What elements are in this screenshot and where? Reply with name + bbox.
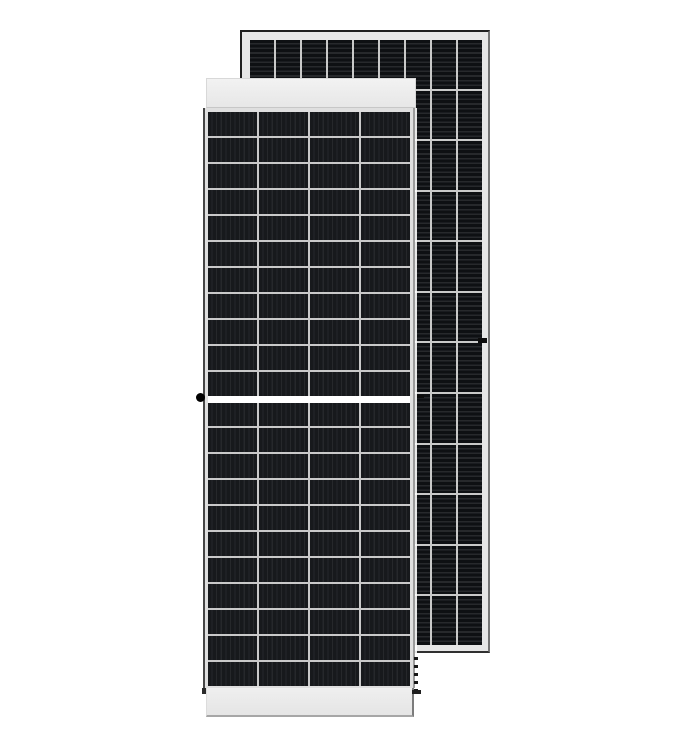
solar-cell-front <box>361 610 410 634</box>
solar-cell-front <box>310 454 359 478</box>
solar-cell-front <box>208 164 257 188</box>
solar-cell-front <box>361 558 410 582</box>
solar-cell-front <box>361 532 410 556</box>
solar-cell-front <box>361 636 410 660</box>
solar-cell-front <box>310 558 359 582</box>
solar-cell-back <box>458 596 482 645</box>
solar-cell-front <box>361 662 410 686</box>
solar-cell-front <box>259 164 308 188</box>
solar-cell-front <box>361 454 410 478</box>
solar-cell-front <box>361 164 410 188</box>
solar-cell-front <box>361 584 410 608</box>
frame-top-strip <box>206 78 416 108</box>
half-cut-gap <box>208 396 410 403</box>
frame-corner-mark <box>202 688 206 694</box>
solar-cell-front <box>208 532 257 556</box>
solar-cell-front <box>259 480 308 504</box>
frame-bottom-strip <box>206 688 414 717</box>
frame-clip-mark <box>478 338 487 343</box>
solar-cell-front <box>361 428 410 452</box>
solar-cell-front <box>259 294 308 318</box>
solar-cell-back <box>432 192 456 241</box>
solar-cell-front <box>259 558 308 582</box>
solar-cell-front <box>259 320 308 344</box>
solar-cell-front <box>259 584 308 608</box>
solar-cell-front <box>361 138 410 162</box>
solar-cell-front <box>259 216 308 240</box>
solar-cell-front <box>259 268 308 292</box>
solar-cell-front <box>310 610 359 634</box>
product-image <box>0 0 684 748</box>
solar-cell-front <box>361 506 410 530</box>
solar-cell-front <box>259 428 308 452</box>
solar-cell-front <box>310 532 359 556</box>
solar-cell-front <box>361 372 410 396</box>
solar-cell-front <box>310 268 359 292</box>
solar-cell-front <box>208 320 257 344</box>
solar-cell-front <box>208 584 257 608</box>
solar-cell-front <box>208 636 257 660</box>
solar-cell-front <box>310 372 359 396</box>
solar-cell-back <box>432 445 456 494</box>
solar-cell-front <box>208 480 257 504</box>
front-panel-grid-lower <box>208 403 410 687</box>
solar-cell-front <box>310 216 359 240</box>
solar-cell-back <box>458 40 482 89</box>
solar-cell-back <box>432 394 456 443</box>
solar-cell-front <box>259 403 308 427</box>
solar-cell-front <box>310 346 359 370</box>
solar-cell-front <box>208 268 257 292</box>
solar-cell-front <box>310 403 359 427</box>
solar-cell-back <box>458 192 482 241</box>
solar-cell-back <box>458 394 482 443</box>
solar-cell-front <box>208 190 257 214</box>
solar-cell-front <box>310 164 359 188</box>
solar-cell-back <box>432 343 456 392</box>
solar-cell-front <box>208 138 257 162</box>
solar-cell-front <box>259 346 308 370</box>
solar-cell-back <box>458 242 482 291</box>
solar-cell-front <box>259 190 308 214</box>
solar-cell-front <box>310 584 359 608</box>
solar-cell-back <box>458 445 482 494</box>
mounting-dot <box>196 393 205 402</box>
solar-cell-front <box>259 112 308 136</box>
solar-cell-back <box>432 40 456 89</box>
solar-cell-front <box>259 242 308 266</box>
solar-cell-front <box>208 112 257 136</box>
solar-cell-front <box>208 403 257 427</box>
solar-cell-front <box>310 112 359 136</box>
solar-cell-front <box>259 532 308 556</box>
solar-cell-front <box>208 558 257 582</box>
solar-cell-front <box>310 138 359 162</box>
solar-cell-back <box>432 91 456 140</box>
frame-corner-mark <box>412 690 421 694</box>
solar-cell-back <box>432 546 456 595</box>
solar-cell-front <box>361 294 410 318</box>
solar-cell-front <box>310 506 359 530</box>
solar-cell-front <box>361 403 410 427</box>
solar-cell-back <box>432 596 456 645</box>
solar-cell-front <box>208 662 257 686</box>
solar-cell-front <box>310 480 359 504</box>
panel-frame-body <box>203 108 415 688</box>
solar-cell-front <box>208 610 257 634</box>
solar-cell-front <box>361 268 410 292</box>
solar-cell-front <box>208 294 257 318</box>
solar-cell-back <box>432 495 456 544</box>
solar-cell-front <box>361 242 410 266</box>
solar-cell-back <box>432 293 456 342</box>
solar-cell-front <box>259 662 308 686</box>
solar-cell-back <box>458 91 482 140</box>
solar-cell-back <box>432 242 456 291</box>
solar-cell-front <box>208 242 257 266</box>
solar-cell-front <box>361 480 410 504</box>
solar-cell-front <box>259 454 308 478</box>
solar-cell-front <box>361 190 410 214</box>
front-panel-grid-upper <box>208 112 410 396</box>
solar-cell-back <box>432 141 456 190</box>
solar-cell-front <box>259 506 308 530</box>
solar-cell-front <box>208 428 257 452</box>
solar-cell-front <box>310 242 359 266</box>
solar-cell-front <box>310 662 359 686</box>
solar-cell-front <box>259 372 308 396</box>
solar-cell-front <box>310 190 359 214</box>
solar-cell-front <box>310 294 359 318</box>
solar-cell-back <box>458 546 482 595</box>
frame-clip-mark <box>417 395 424 398</box>
cell-area <box>208 112 410 686</box>
solar-cell-back <box>458 293 482 342</box>
solar-cell-front <box>361 112 410 136</box>
solar-cell-front <box>208 372 257 396</box>
solar-cell-front <box>310 428 359 452</box>
solar-cell-front <box>208 346 257 370</box>
solar-cell-front <box>361 216 410 240</box>
solar-cell-front <box>259 610 308 634</box>
solar-cell-front <box>208 506 257 530</box>
solar-cell-front <box>208 216 257 240</box>
solar-cell-front <box>310 320 359 344</box>
solar-cell-back <box>458 141 482 190</box>
solar-cell-front <box>361 320 410 344</box>
solar-cell-front <box>208 454 257 478</box>
solar-cell-front <box>310 636 359 660</box>
solar-panel-front <box>203 78 416 717</box>
edge-dashed-shadow <box>414 657 418 694</box>
solar-cell-front <box>361 346 410 370</box>
solar-cell-back <box>458 495 482 544</box>
solar-cell-front <box>259 636 308 660</box>
solar-cell-front <box>259 138 308 162</box>
solar-cell-back <box>458 343 482 392</box>
